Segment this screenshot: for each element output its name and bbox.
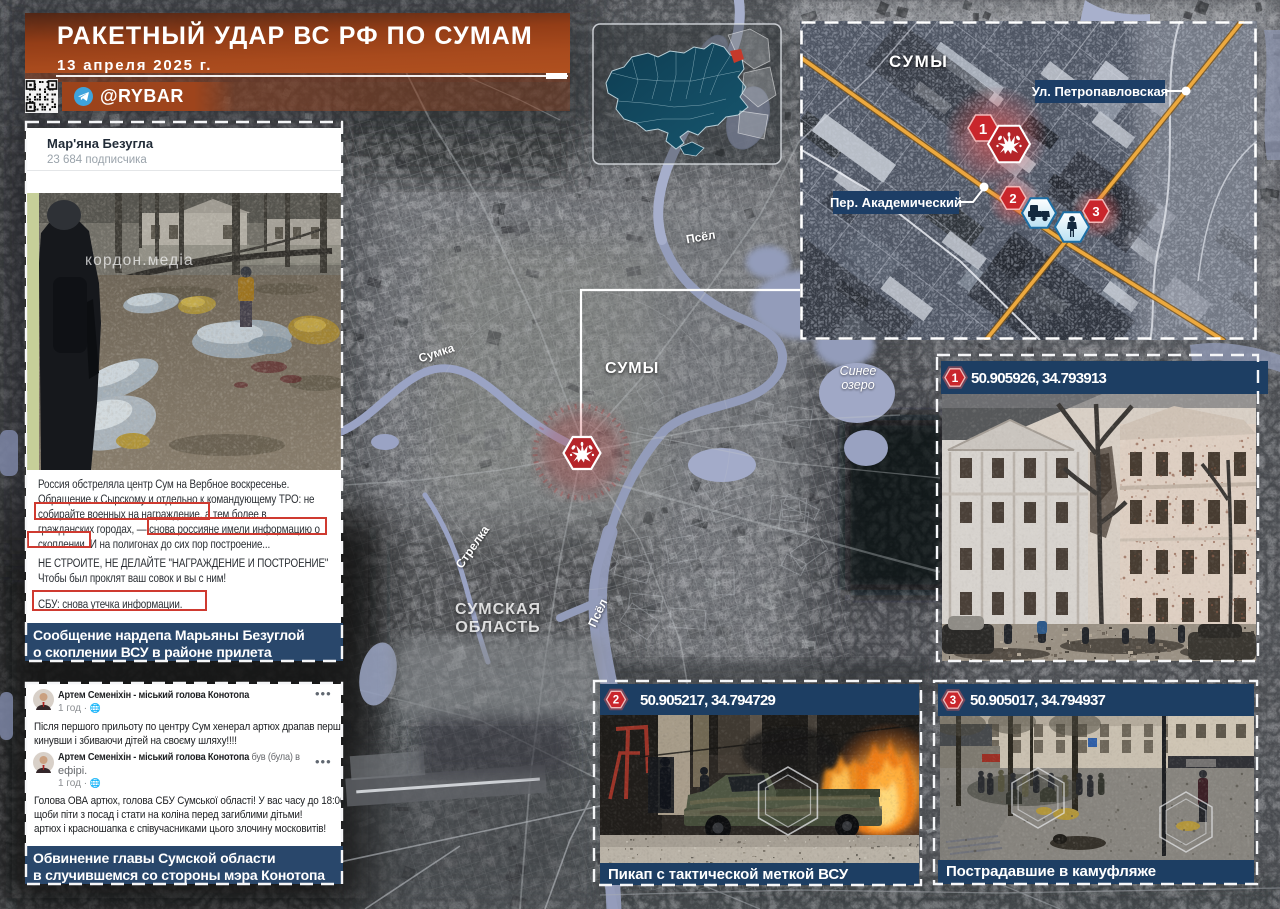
svg-text:3: 3 [1092,204,1099,219]
svg-text:1: 1 [979,121,987,138]
svg-text:кордон.медіа: кордон.медіа [85,252,194,269]
svg-text:1: 1 [952,371,959,385]
svg-text:Ул. Петропавловская: Ул. Петропавловская [1032,84,1169,99]
svg-text:Пер. Академический: Пер. Академический [830,195,962,210]
svg-text:СУМЫ: СУМЫ [889,52,948,71]
svg-text:2: 2 [613,695,619,707]
svg-text:2: 2 [1009,191,1016,206]
svg-text:3: 3 [950,695,956,707]
